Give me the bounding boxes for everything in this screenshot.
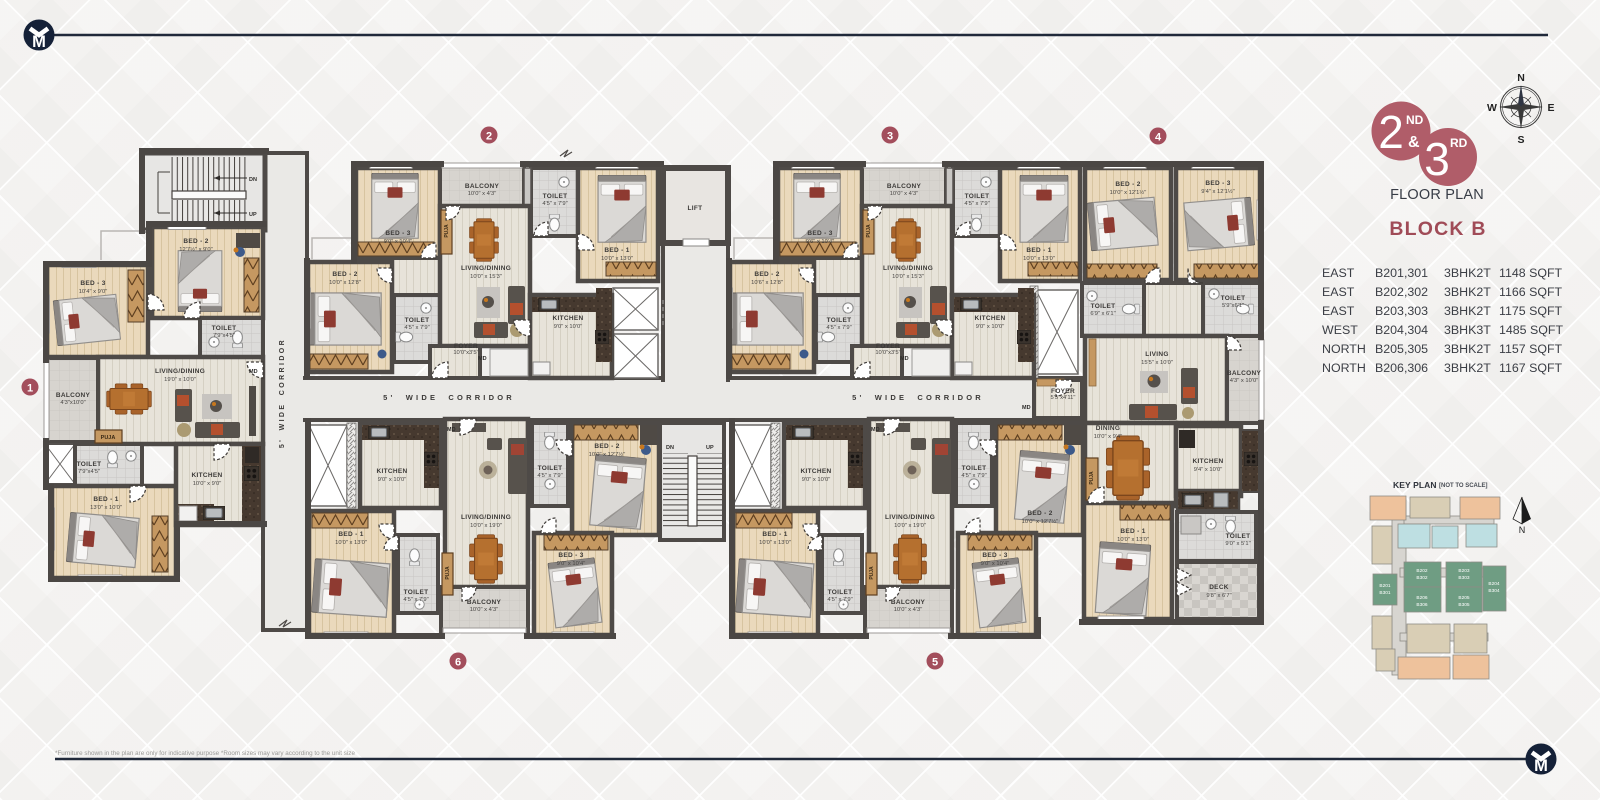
svg-text:B204,304: B204,304 [1375, 323, 1428, 337]
svg-text:BED - 3: BED - 3 [807, 230, 832, 237]
svg-text:3: 3 [887, 131, 893, 143]
svg-text:BED - 3: BED - 3 [1205, 180, 1230, 187]
svg-text:BED - 2: BED - 2 [1027, 510, 1052, 517]
svg-text:B301: B301 [1379, 590, 1391, 596]
svg-text:MD: MD [871, 427, 880, 433]
svg-text:B303: B303 [1458, 575, 1470, 581]
svg-text:10'0" x 4'3": 10'0" x 4'3" [470, 607, 499, 613]
svg-text:TOILET: TOILET [828, 589, 853, 596]
svg-text:B304: B304 [1488, 588, 1500, 594]
svg-text:4'5" x 7'9": 4'5" x 7'9" [404, 325, 429, 331]
svg-text:LIVING/DINING: LIVING/DINING [883, 265, 933, 272]
svg-text:BALCONY: BALCONY [1227, 370, 1262, 377]
svg-text:RD: RD [1450, 136, 1468, 150]
svg-text:BALCONY: BALCONY [56, 392, 91, 399]
svg-text:PUJA: PUJA [445, 566, 451, 580]
svg-text:10'0" x 9'0": 10'0" x 9'0" [193, 481, 222, 487]
svg-text:10'0" x 19'0": 10'0" x 19'0" [894, 523, 926, 529]
svg-text:10'0" x 13'0": 10'0" x 13'0" [335, 540, 367, 546]
svg-text:4'5" x 7'9": 4'5" x 7'9" [403, 597, 428, 603]
svg-text:1167 SQFT: 1167 SQFT [1499, 361, 1563, 375]
svg-text:9'0" x 10'4": 9'0" x 10'4" [384, 239, 413, 245]
svg-text:9'0" x 10'0": 9'0" x 10'0" [976, 324, 1005, 330]
svg-text:B203,303: B203,303 [1375, 304, 1428, 318]
svg-text:10'0" x 13'0": 10'0" x 13'0" [1023, 256, 1055, 262]
svg-text:BALCONY: BALCONY [465, 183, 500, 190]
svg-text:10'0" x 13'0": 10'0" x 13'0" [1117, 537, 1149, 543]
svg-text:10'0" x 9'4": 10'0" x 9'4" [1094, 434, 1123, 440]
svg-text:*Furniture shown in the plan a: *Furniture shown in the plan are only fo… [55, 750, 355, 757]
svg-text:9'0" x 10'4": 9'0" x 10'4" [981, 561, 1010, 567]
svg-text:3BHK2T: 3BHK2T [1444, 285, 1491, 299]
svg-text:BED - 2: BED - 2 [183, 238, 208, 245]
svg-text:10'0" x 12'1½": 10'0" x 12'1½" [1110, 189, 1147, 196]
svg-text:B201,301: B201,301 [1375, 266, 1428, 280]
svg-text:BALCONY: BALCONY [887, 183, 922, 190]
svg-text:BED - 1: BED - 1 [604, 247, 629, 254]
svg-text:NORTH: NORTH [1322, 361, 1366, 375]
svg-text:B202: B202 [1416, 568, 1428, 574]
svg-text:FLOOR PLAN: FLOOR PLAN [1390, 187, 1484, 203]
svg-text:EAST: EAST [1322, 266, 1355, 280]
svg-text:UP: UP [706, 445, 714, 451]
svg-text:3BHK2T: 3BHK2T [1444, 361, 1491, 375]
svg-text:MD: MD [900, 356, 909, 362]
svg-text:10'0"x3'5": 10'0"x3'5" [875, 350, 900, 356]
svg-text:E: E [1547, 102, 1554, 114]
svg-text:4'5" x 7'9": 4'5" x 7'9" [827, 597, 852, 603]
svg-text:4'5" x 7'9": 4'5" x 7'9" [826, 325, 851, 331]
svg-text:BALCONY: BALCONY [467, 599, 502, 606]
svg-text:4'5" x 7'9": 4'5" x 7'9" [961, 473, 986, 479]
svg-text:DN: DN [666, 445, 674, 451]
svg-text:FOYER: FOYER [876, 343, 900, 350]
svg-text:BALCONY: BALCONY [891, 599, 926, 606]
svg-text:TOILET: TOILET [404, 589, 429, 596]
svg-text:N: N [1517, 72, 1525, 84]
svg-text:3BHK3T: 3BHK3T [1444, 323, 1491, 337]
svg-text:3BHK2T: 3BHK2T [1444, 304, 1491, 318]
svg-text:WEST: WEST [1322, 323, 1358, 337]
svg-text:KITCHEN: KITCHEN [1193, 458, 1224, 465]
svg-text:B203: B203 [1458, 568, 1470, 574]
svg-text:TOILET: TOILET [77, 461, 102, 468]
svg-text:TOILET: TOILET [405, 317, 430, 324]
svg-text:BED - 2: BED - 2 [332, 271, 357, 278]
svg-text:MD: MD [249, 369, 258, 375]
svg-text:LIVING: LIVING [1145, 351, 1168, 358]
svg-text:MD: MD [478, 356, 487, 362]
svg-text:MD: MD [1022, 405, 1031, 411]
svg-text:10'0" x 12'8": 10'0" x 12'8" [329, 280, 361, 286]
svg-text:6: 6 [455, 657, 461, 669]
svg-text:FOYER: FOYER [1051, 388, 1075, 395]
svg-text:BED - 3: BED - 3 [80, 280, 105, 287]
svg-text:B202,302: B202,302 [1375, 285, 1428, 299]
svg-text:KITCHEN: KITCHEN [377, 468, 408, 475]
svg-text:BED - 2: BED - 2 [1115, 181, 1140, 188]
svg-text:LIVING/DINING: LIVING/DINING [155, 368, 205, 375]
svg-text:BED - 1: BED - 1 [338, 531, 363, 538]
svg-text:10'0" x 4'3": 10'0" x 4'3" [890, 191, 919, 197]
svg-text:1148 SQFT: 1148 SQFT [1499, 266, 1563, 280]
svg-text:4'5" x 7'9": 4'5" x 7'9" [537, 473, 562, 479]
svg-text:10'0" x 15'3": 10'0" x 15'3" [470, 274, 502, 280]
svg-text:10'4" x 9'0": 10'4" x 9'0" [79, 289, 108, 295]
svg-text:9'0" x 10'4": 9'0" x 10'4" [557, 561, 586, 567]
svg-text:TOILET: TOILET [543, 193, 568, 200]
svg-text:4'5" x 7'9": 4'5" x 7'9" [964, 201, 989, 207]
svg-text:1166 SQFT: 1166 SQFT [1499, 285, 1563, 299]
svg-text:1: 1 [27, 383, 33, 395]
svg-text:7'9"x4'5": 7'9"x4'5" [78, 469, 100, 475]
svg-text:DECK: DECK [1209, 584, 1229, 591]
svg-text:BED - 3: BED - 3 [982, 552, 1007, 559]
svg-text:10'6" x 12'8": 10'6" x 12'8" [751, 280, 783, 286]
svg-text:1175 SQFT: 1175 SQFT [1499, 304, 1563, 318]
svg-text:10'0"x3'5": 10'0"x3'5" [453, 350, 478, 356]
svg-text:S: S [1517, 134, 1524, 146]
svg-text:10'0" x 13'0": 10'0" x 13'0" [601, 256, 633, 262]
svg-text:B206,306: B206,306 [1375, 361, 1428, 375]
svg-text:W: W [1487, 102, 1497, 114]
svg-text:10'0" x 4'3": 10'0" x 4'3" [468, 191, 497, 197]
svg-text:TOILET: TOILET [965, 193, 990, 200]
svg-text:2: 2 [486, 131, 492, 143]
svg-text:KITCHEN: KITCHEN [192, 472, 223, 479]
svg-text:2: 2 [1378, 106, 1404, 158]
svg-text:B205,305: B205,305 [1375, 342, 1428, 356]
svg-text:4'3" x 10'0": 4'3" x 10'0" [1230, 378, 1259, 384]
svg-text:PUJA: PUJA [444, 224, 450, 238]
svg-text:KEY PLAN: KEY PLAN [1393, 480, 1437, 490]
svg-text:&: & [1408, 134, 1420, 151]
svg-text:BED - 2: BED - 2 [754, 271, 779, 278]
svg-text:BED - 1: BED - 1 [762, 531, 787, 538]
svg-text:B206: B206 [1416, 595, 1428, 601]
svg-text:3BHK2T: 3BHK2T [1444, 342, 1491, 356]
svg-text:9'6" x 10'4": 9'6" x 10'4" [806, 239, 835, 245]
svg-text:BED - 3: BED - 3 [558, 552, 583, 559]
svg-text:1157 SQFT: 1157 SQFT [1499, 342, 1563, 356]
svg-text:BED - 1: BED - 1 [1026, 247, 1051, 254]
svg-text:9'8" x 6'7": 9'8" x 6'7" [1206, 593, 1231, 599]
svg-text:EAST: EAST [1322, 285, 1355, 299]
svg-text:10'0" x 19'0": 10'0" x 19'0" [470, 523, 502, 529]
svg-text:5' WIDE CORRIDOR: 5' WIDE CORRIDOR [852, 393, 984, 402]
svg-text:[NOT TO SCALE]: [NOT TO SCALE] [1439, 483, 1488, 489]
svg-text:KITCHEN: KITCHEN [801, 468, 832, 475]
svg-text:TOILET: TOILET [538, 465, 563, 472]
svg-text:5'5"x4'11": 5'5"x4'11" [1051, 395, 1076, 401]
svg-text:10'0" x 4'3": 10'0" x 4'3" [894, 607, 923, 613]
svg-text:M: M [32, 33, 46, 51]
svg-text:KITCHEN: KITCHEN [553, 315, 584, 322]
svg-text:9'0" x 10'0": 9'0" x 10'0" [554, 324, 583, 330]
svg-text:9'0" x 10'0": 9'0" x 10'0" [378, 477, 407, 483]
svg-text:TOILET: TOILET [962, 465, 987, 472]
svg-text:UP: UP [249, 212, 257, 218]
svg-text:B306: B306 [1416, 602, 1428, 608]
svg-text:PUJA: PUJA [866, 224, 872, 238]
svg-text:B205: B205 [1458, 595, 1470, 601]
svg-text:MD: MD [447, 427, 456, 433]
svg-text:LIFT: LIFT [688, 205, 703, 212]
svg-text:N: N [1519, 525, 1526, 535]
svg-text:10'0" x 12'7½": 10'0" x 12'7½" [589, 451, 626, 458]
svg-text:15'5" x 10'0": 15'5" x 10'0" [1141, 360, 1173, 366]
svg-text:BED - 1: BED - 1 [1120, 528, 1145, 535]
svg-text:19'0" x 10'0": 19'0" x 10'0" [164, 377, 196, 383]
svg-text:13'0" x 10'0": 13'0" x 10'0" [90, 505, 122, 511]
svg-text:LIVING/DINING: LIVING/DINING [461, 514, 511, 521]
svg-text:LIVING/DINING: LIVING/DINING [461, 265, 511, 272]
svg-text:12'7½" x 9'0": 12'7½" x 9'0" [179, 246, 212, 253]
svg-text:DN: DN [249, 177, 257, 183]
svg-text:ND: ND [1406, 113, 1424, 127]
svg-text:TOILET: TOILET [212, 325, 237, 332]
svg-text:PUJA: PUJA [1089, 471, 1095, 485]
svg-text:TOILET: TOILET [1221, 295, 1246, 302]
svg-text:BED - 3: BED - 3 [385, 230, 410, 237]
svg-text:9'0" x 10'0": 9'0" x 10'0" [802, 477, 831, 483]
svg-text:5'9"x6'1": 5'9"x6'1" [1222, 303, 1244, 309]
svg-text:FOYER: FOYER [454, 343, 478, 350]
svg-text:KITCHEN: KITCHEN [975, 315, 1006, 322]
svg-text:7'9"x4'5": 7'9"x4'5" [213, 333, 235, 339]
svg-text:BED - 2: BED - 2 [594, 443, 619, 450]
svg-text:10'0" x 15'3": 10'0" x 15'3" [892, 274, 924, 280]
svg-text:4'5" x 7'9": 4'5" x 7'9" [542, 201, 567, 207]
svg-text:6'9" x 6'1": 6'9" x 6'1" [1090, 311, 1115, 317]
svg-text:3BHK2T: 3BHK2T [1444, 266, 1491, 280]
svg-text:EAST: EAST [1322, 304, 1355, 318]
svg-text:PUJA: PUJA [101, 435, 116, 441]
svg-text:TOILET: TOILET [1226, 533, 1251, 540]
svg-text:5: 5 [932, 657, 938, 669]
svg-text:4'3"x10'0": 4'3"x10'0" [60, 400, 85, 406]
svg-text:B302: B302 [1416, 575, 1428, 581]
svg-text:1485 SQFT: 1485 SQFT [1499, 323, 1563, 337]
svg-text:9'0" x 5'1": 9'0" x 5'1" [1225, 541, 1250, 547]
svg-text:DINING: DINING [1096, 425, 1121, 432]
svg-text:TOILET: TOILET [1091, 303, 1116, 310]
svg-text:LIVING/DINING: LIVING/DINING [885, 514, 935, 521]
svg-text:PUJA: PUJA [869, 566, 875, 580]
svg-text:M: M [1534, 757, 1548, 775]
svg-text:TOILET: TOILET [827, 317, 852, 324]
svg-text:5' WIDE CORRIDOR: 5' WIDE CORRIDOR [383, 393, 515, 402]
svg-text:B201: B201 [1379, 583, 1391, 589]
svg-text:B204: B204 [1488, 581, 1500, 587]
svg-text:9'4" x 10'0": 9'4" x 10'0" [1194, 467, 1223, 473]
svg-text:BLOCK B: BLOCK B [1389, 218, 1486, 240]
svg-text:5' WIDE CORRIDOR: 5' WIDE CORRIDOR [279, 338, 286, 448]
svg-text:BED - 1: BED - 1 [93, 496, 118, 503]
svg-text:NORTH: NORTH [1322, 342, 1366, 356]
svg-text:B305: B305 [1458, 602, 1470, 608]
svg-text:4: 4 [1155, 132, 1162, 144]
svg-text:9'4" x 12'1½": 9'4" x 12'1½" [1201, 188, 1234, 195]
svg-text:10'0" x 12'7½": 10'0" x 12'7½" [1022, 518, 1059, 525]
svg-text:10'0" x 13'0": 10'0" x 13'0" [759, 540, 791, 546]
